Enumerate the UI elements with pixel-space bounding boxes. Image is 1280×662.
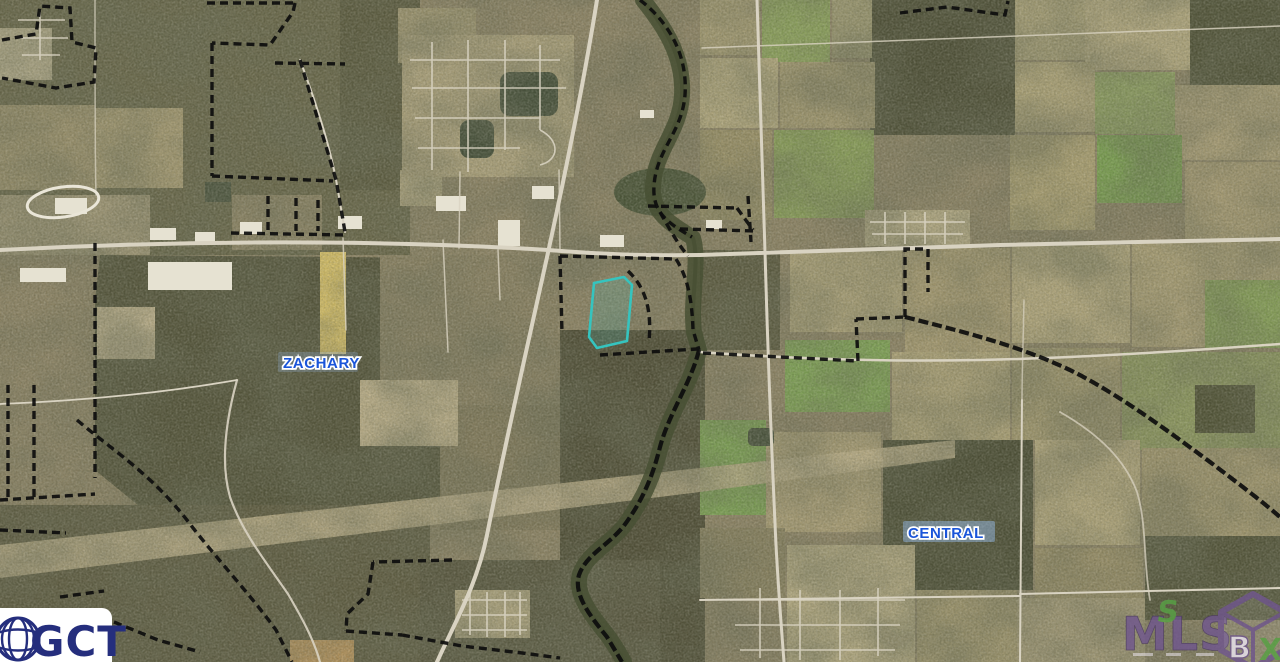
gct-logo: GCT <box>0 608 127 662</box>
subject-property-outline <box>589 277 632 348</box>
central-label: CENTRAL <box>908 525 984 542</box>
mls-underline <box>1133 653 1153 656</box>
mls-box-letter-left: B <box>1228 631 1251 662</box>
grain-light <box>0 0 1280 662</box>
mls-underline <box>1166 653 1181 656</box>
mls-box-letter-right: X <box>1259 633 1280 662</box>
gct-logo-text: GCT <box>30 617 127 662</box>
mls-underline <box>1196 653 1214 656</box>
map-canvas: ZACHARY CENTRAL GCT MLS S B X <box>0 0 1280 662</box>
zachary-label: ZACHARY <box>283 355 360 372</box>
aerial-map-image: ZACHARY CENTRAL GCT MLS S B X <box>0 0 1280 662</box>
